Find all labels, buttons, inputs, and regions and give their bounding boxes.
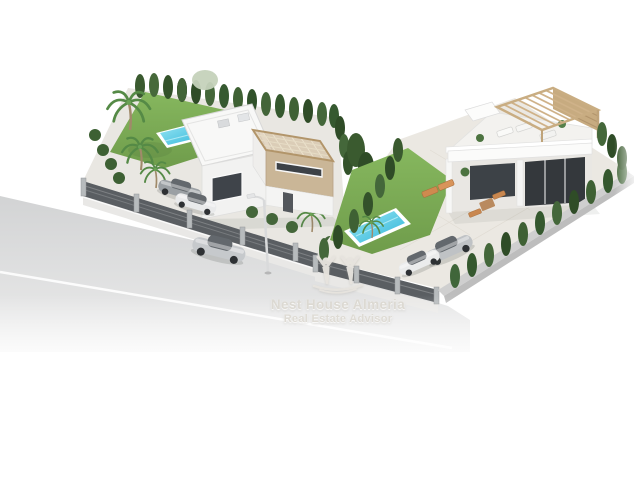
scene-render <box>0 0 640 480</box>
villa-right-column <box>517 160 523 206</box>
right-fade <box>614 90 640 350</box>
villa-left-window <box>212 172 242 202</box>
villa-left-door <box>283 192 293 213</box>
terrace-plant <box>476 134 484 142</box>
bottom-fade <box>0 295 640 365</box>
pale-tree <box>192 70 218 90</box>
patio-plant <box>461 168 470 177</box>
plot-right <box>313 88 634 304</box>
render-canvas: Nest House Almeria Real Estate Advisor <box>0 0 640 480</box>
villa-right-glass-1 <box>470 163 515 200</box>
